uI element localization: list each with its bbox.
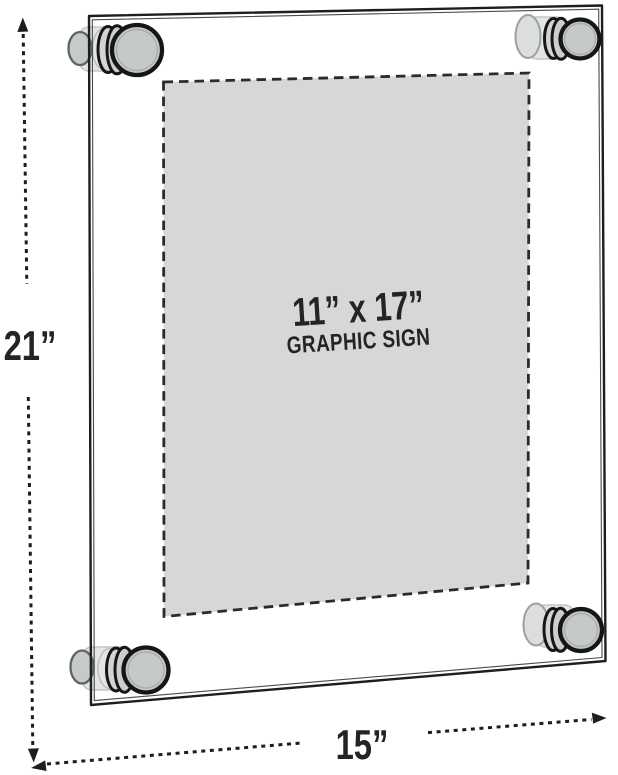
width-arrow-right-icon — [592, 713, 607, 724]
width-dimension-line-left — [47, 743, 301, 764]
standoff-bottom-right — [544, 608, 602, 651]
standoff-cap-face — [124, 648, 169, 693]
width-dimension: 15” — [31, 713, 607, 771]
height-dimension: 21” — [4, 18, 57, 763]
standoff-top-right — [545, 18, 600, 59]
standoff-back-ellipse — [516, 15, 541, 58]
standoff-cap-face — [561, 20, 600, 59]
diagram-canvas: 21” 15” 11” x 17” GRAPHIC SIGN — [0, 0, 618, 775]
sign-text: 11” x 17” GRAPHIC SIGN — [286, 282, 431, 359]
standoff-bottom-left — [107, 647, 169, 692]
height-dimension-line-lower — [28, 397, 33, 748]
width-arrow-left-icon — [31, 760, 47, 771]
height-dimension-label: 21” — [4, 322, 57, 369]
width-dimension-line-right — [428, 719, 592, 732]
height-arrow-top-icon — [17, 18, 28, 33]
height-arrow-bottom-icon — [28, 748, 39, 762]
width-dimension-label: 15” — [336, 721, 389, 768]
product-dimension-diagram: 21” 15” 11” x 17” GRAPHIC SIGN — [0, 0, 618, 775]
standoff-cap-face — [560, 609, 602, 651]
height-dimension-line-upper — [23, 34, 27, 284]
standoff-cap-face — [112, 25, 162, 75]
standoff-top-left — [98, 25, 162, 75]
